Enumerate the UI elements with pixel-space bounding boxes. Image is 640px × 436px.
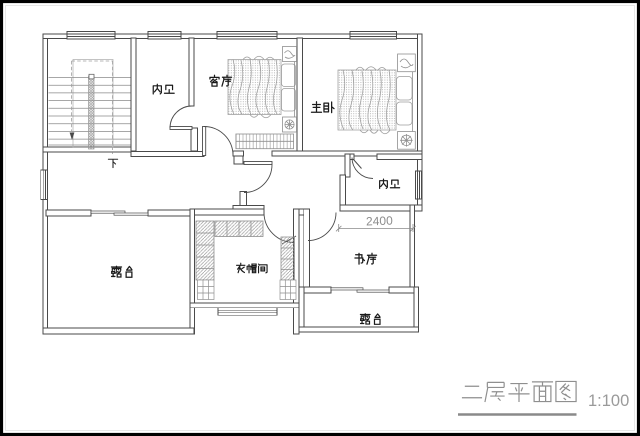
svg-text:1:100: 1:100 [588,392,629,410]
svg-text:2400: 2400 [366,214,393,229]
